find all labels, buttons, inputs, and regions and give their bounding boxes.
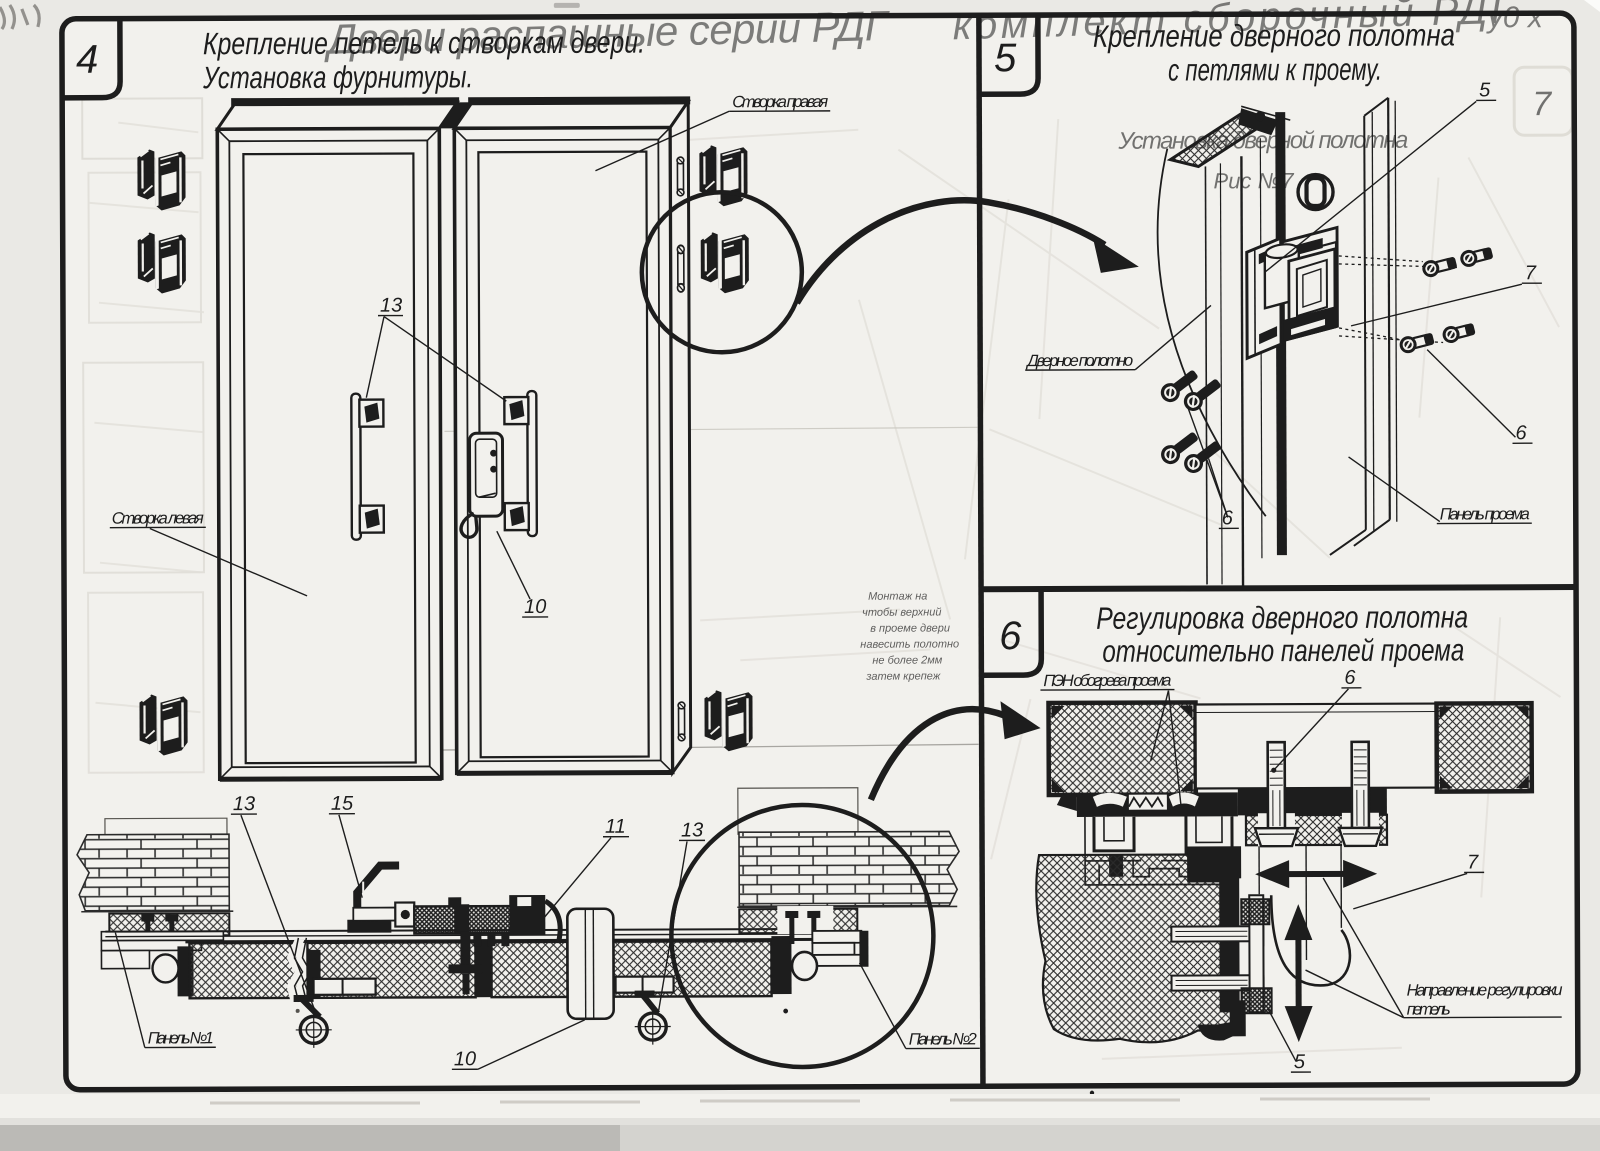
svg-text:относительно панелей проема: относительно панелей проема — [1102, 632, 1464, 668]
svg-text:Крепление петель к створкам дв: Крепление петель к створкам двери. — [203, 25, 645, 62]
svg-text:5: 5 — [1479, 79, 1491, 101]
svg-text:5: 5 — [1294, 1051, 1306, 1073]
svg-text:Створка правая: Створка правая — [732, 93, 828, 111]
svg-text:7: 7 — [1525, 262, 1537, 284]
svg-text:Дверное полотно: Дверное полотно — [1025, 352, 1133, 370]
svg-text:7: 7 — [1467, 851, 1479, 873]
svg-text:в проеме двери: в проеме двери — [870, 622, 950, 634]
svg-text:13: 13 — [233, 793, 255, 815]
svg-text:10: 10 — [524, 596, 546, 618]
svg-text:Створка левая: Створка левая — [112, 509, 204, 527]
svg-text:не более 2мм: не более 2мм — [872, 654, 942, 666]
svg-text:13: 13 — [380, 295, 402, 317]
svg-text:6: 6 — [1222, 507, 1234, 529]
svg-text:13: 13 — [681, 819, 703, 841]
svg-text:с петлями к проему.: с петлями к проему. — [1168, 52, 1382, 88]
svg-text:6: 6 — [1515, 422, 1527, 444]
svg-text:6: 6 — [1344, 667, 1356, 689]
svg-text:Панель №2: Панель №2 — [909, 1030, 977, 1048]
svg-text:Установка фурнитуры.: Установка фурнитуры. — [202, 59, 473, 95]
svg-text:10: 10 — [454, 1048, 476, 1070]
svg-text:Регулировка дверного полотна: Регулировка дверного полотна — [1096, 599, 1468, 635]
svg-text:Монтаж на: Монтаж на — [868, 591, 927, 603]
svg-text:Направление регулировки: Направление регулировки — [1407, 981, 1563, 1000]
svg-text:затем крепеж: затем крепеж — [865, 670, 940, 682]
svg-text:15: 15 — [331, 793, 354, 815]
svg-text:петель: петель — [1407, 1001, 1451, 1019]
svg-text:Панель проема: Панель проема — [1440, 505, 1530, 523]
svg-text:ПЭН обогрева проема: ПЭН обогрева проема — [1043, 672, 1171, 690]
svg-text:у0 х: у0 х — [1486, 1, 1544, 34]
svg-text:4: 4 — [76, 38, 98, 82]
svg-text:7: 7 — [1532, 85, 1552, 123]
svg-text:11: 11 — [605, 816, 626, 838]
svg-text:Панель №1: Панель №1 — [148, 1029, 214, 1047]
svg-text:чтобы верхний: чтобы верхний — [862, 606, 941, 618]
svg-text:6: 6 — [999, 614, 1022, 658]
svg-text:Крепление дверного полотна: Крепление дверного полотна — [1093, 17, 1455, 53]
svg-text:навесить полотно: навесить полотно — [860, 638, 959, 650]
svg-text:5: 5 — [994, 36, 1017, 80]
